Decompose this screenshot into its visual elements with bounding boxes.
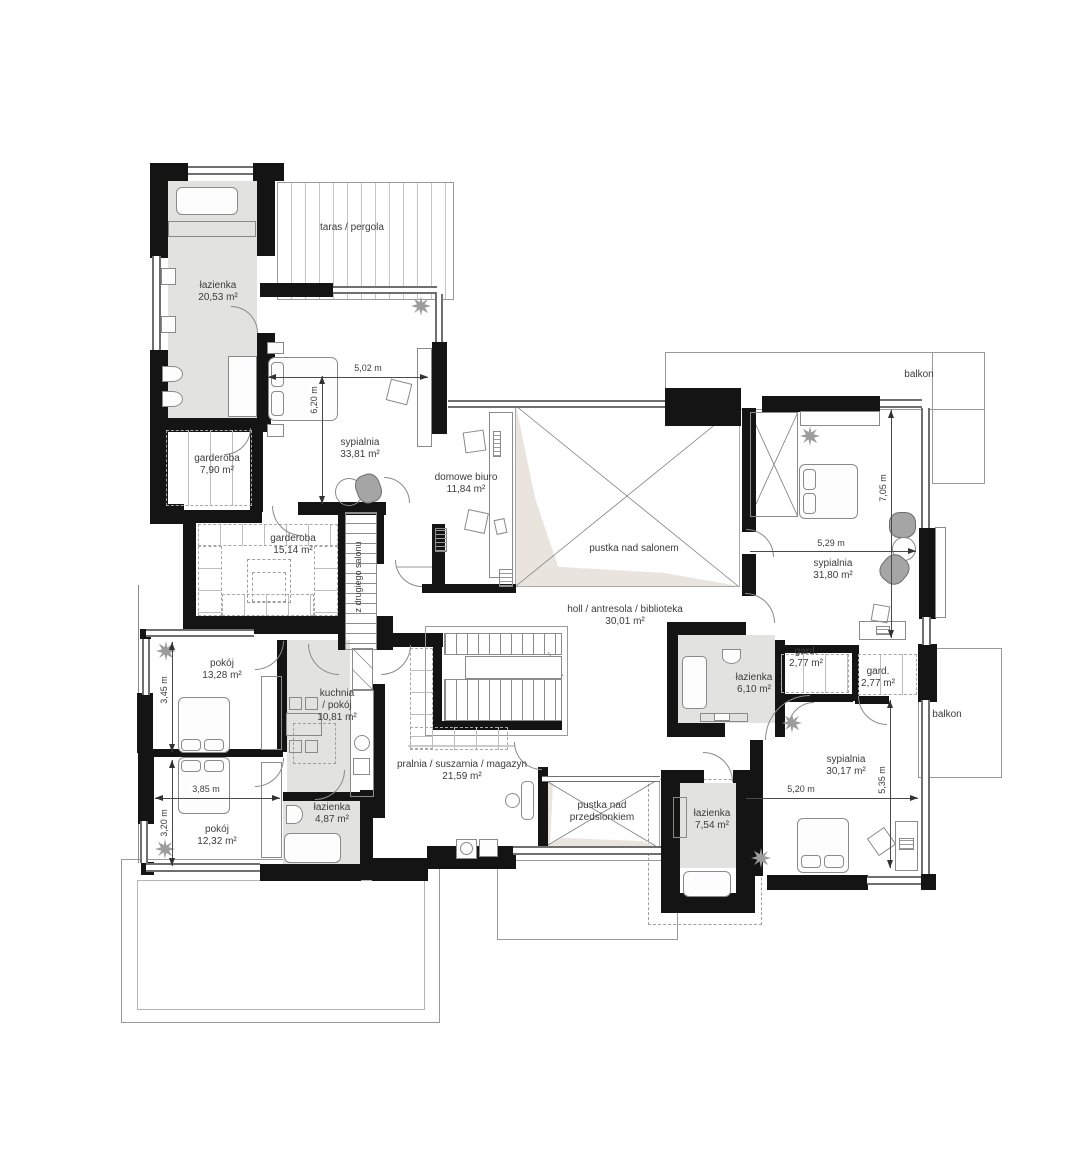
wall: [432, 342, 447, 434]
chair: [386, 379, 413, 406]
kitchen-sink: [354, 735, 370, 751]
stairs-note-label: z drugiego salonu: [353, 539, 363, 614]
room-label-pokoj1: pokój 13,28 m²: [202, 658, 241, 682]
room-name: przedsionkiem: [570, 812, 634, 824]
room-area: 30,17 m²: [826, 766, 865, 778]
chair: [305, 740, 318, 753]
room-label-pustka-salon: pustka nad salonem: [589, 543, 679, 555]
bathtub: [176, 187, 238, 215]
room-name: łazienka: [736, 672, 773, 684]
window: [880, 399, 922, 408]
room-area: 11,84 m²: [435, 484, 498, 496]
arrow-icon: [169, 760, 175, 768]
wall: [138, 751, 154, 824]
wall: [150, 504, 184, 524]
room-label-kuchnia: kuchnia / pokój 10,81 m²: [317, 688, 356, 724]
sideboard: [800, 411, 880, 426]
window: [140, 821, 148, 863]
room-area: 13,28 m²: [202, 670, 241, 682]
fridge-crossed: [352, 648, 373, 690]
room-name: balkon: [904, 369, 933, 381]
dimension-line: [155, 798, 280, 799]
room-name: łazienka: [314, 802, 351, 814]
wall: [921, 874, 936, 890]
room-label-pralnia: pralnia / suszarnia / magazyn 21,59 m²: [397, 759, 527, 783]
arrow-icon: [169, 858, 175, 866]
bathtub: [683, 871, 731, 897]
chair: [289, 697, 302, 710]
room-label-sypialnia1: sypialnia 33,81 m²: [340, 437, 379, 461]
arrow-icon: [272, 795, 280, 801]
balcony-post: [935, 527, 946, 618]
wall: [377, 504, 384, 564]
nightstand: [267, 342, 284, 354]
room-label-lazienka1: łazienka 20,53 m²: [198, 280, 237, 304]
room-name: garderoba: [194, 453, 240, 465]
room-area: 7,90 m²: [194, 465, 240, 477]
laptop: [899, 838, 914, 850]
arrow-icon: [910, 795, 918, 801]
room-name: gard.: [861, 666, 895, 678]
room-name: kuchnia: [317, 688, 356, 700]
chair: [305, 697, 318, 710]
room-label-lazienka3: łazienka 7,54 m²: [694, 808, 731, 832]
washing-machine-drum: [460, 842, 473, 855]
room-name: pokój: [197, 824, 236, 836]
arrow-icon: [887, 860, 893, 868]
dimension-line: [891, 410, 892, 638]
room-label-sypialnia2: sypialnia 31,80 m²: [813, 558, 852, 582]
wall: [150, 178, 168, 258]
wardrobe: [261, 676, 282, 750]
wardrobe: [261, 762, 282, 858]
ironing-board: [521, 781, 534, 820]
room-label-pokoj2: pokój 12,32 m²: [197, 824, 236, 848]
floor-plan: 5,02 m 6,20 m 7,05 m 5,29 m 3,45 m 3,85 …: [0, 0, 1088, 1167]
main-staircase-landing: [465, 656, 562, 679]
door-arc: [858, 696, 887, 725]
window: [188, 166, 253, 175]
arrow-icon: [155, 795, 163, 801]
wardrobe-zone: [198, 546, 222, 616]
room-name: pokój: [202, 658, 241, 670]
bookshelf: [435, 528, 447, 552]
chair: [464, 509, 489, 534]
toilet: [162, 366, 183, 382]
room-name: taras / pergola: [320, 222, 384, 234]
window: [146, 629, 254, 637]
plant-icon: [800, 426, 820, 446]
room-area: 4,87 m²: [314, 814, 351, 826]
dim-label: 5,35 m: [877, 764, 887, 796]
arrow-icon: [319, 496, 325, 504]
door-arc: [395, 560, 422, 587]
door-arc: [703, 752, 733, 782]
room-label-taras: taras / pergola: [320, 222, 384, 234]
window: [513, 846, 661, 855]
window: [921, 700, 930, 874]
room-label-balkon-gorny: balkon: [904, 369, 933, 381]
dimension-line: [172, 760, 173, 866]
wall: [762, 396, 880, 412]
main-staircase-upper-flight: [444, 633, 562, 655]
wall: [137, 693, 153, 753]
pillow: [181, 739, 201, 751]
wall: [433, 635, 442, 728]
room-name: sypialnia: [813, 558, 852, 570]
pillow: [204, 760, 224, 772]
dimension-line: [746, 798, 918, 799]
wall: [733, 770, 756, 783]
plant-icon: [751, 848, 771, 868]
wall: [680, 770, 704, 783]
chair: [867, 827, 896, 856]
window: [922, 617, 931, 645]
dimension-line: [322, 376, 323, 504]
plant-icon: [411, 296, 431, 316]
dimension-line: [268, 377, 428, 378]
wardrobe-zone: [314, 546, 338, 616]
pillow: [803, 469, 816, 490]
window: [146, 863, 260, 872]
pillow: [801, 855, 821, 868]
room-label-biuro: domowe biuro 11,84 m²: [435, 472, 498, 496]
room-name: garderoba: [270, 533, 316, 545]
door-arc: [745, 593, 775, 623]
chair: [289, 740, 302, 753]
room-area: 20,53 m²: [198, 292, 237, 304]
window: [542, 776, 660, 782]
dim-label: 6,20 m: [309, 384, 319, 416]
arrow-icon: [887, 700, 893, 708]
wall: [665, 388, 741, 426]
room-area: 30,01 m²: [567, 616, 683, 628]
arrow-icon: [888, 630, 894, 638]
bathroom-counter: [168, 221, 256, 237]
room-name: pustka nad: [570, 800, 634, 812]
wall: [767, 875, 868, 890]
wall: [260, 864, 361, 881]
window: [435, 294, 443, 342]
wall: [373, 684, 385, 818]
room-name: balkon: [932, 709, 961, 721]
chair: [463, 430, 487, 454]
dim-label: 5,02 m: [351, 363, 385, 373]
arrow-icon: [268, 374, 276, 380]
wall: [918, 644, 937, 702]
room-area: 31,80 m²: [813, 570, 852, 582]
shower: [228, 356, 257, 417]
room-label-balkon-boczny: balkon: [932, 709, 961, 721]
arrow-icon: [888, 410, 894, 418]
wall: [919, 528, 936, 619]
dimension-line: [750, 551, 916, 552]
dimension-line: [172, 642, 173, 752]
room-label-holl: holl / antresola / biblioteka 30,01 m²: [567, 604, 683, 628]
room-label-pustka-przedsionek: pustka nad przedsionkiem: [570, 800, 634, 824]
room-name: sypialnia: [826, 754, 865, 766]
room-area: 6,10 m²: [736, 684, 773, 696]
arrow-icon: [169, 744, 175, 752]
washbasin: [161, 268, 176, 285]
room-name: sypialnia: [340, 437, 379, 449]
room-label-sypialnia3: sypialnia 30,17 m²: [826, 754, 865, 778]
door-arc: [384, 477, 410, 503]
room-name: gard.: [789, 646, 823, 658]
plant-icon: [782, 713, 802, 733]
nightstand: [267, 424, 284, 437]
dim-label: 7,05 m: [878, 472, 888, 504]
terrace-below-inner-outline: [137, 880, 425, 1010]
room-name: pustka nad salonem: [589, 543, 679, 555]
room-label-gard-a: gard. 2,77 m²: [789, 646, 823, 670]
room-name: łazienka: [198, 280, 237, 292]
wall: [260, 283, 333, 297]
room-label-gard-b: gard. 2,77 m²: [861, 666, 895, 690]
room-name: domowe biuro: [435, 472, 498, 484]
monitor: [493, 431, 501, 457]
door-arc: [381, 645, 411, 675]
bathtub: [682, 656, 707, 709]
wall: [742, 554, 756, 596]
door-arc: [746, 529, 774, 557]
pillow: [271, 391, 284, 416]
balcony-top-right-outline: [932, 352, 985, 484]
main-staircase-lower-flight: [444, 679, 562, 721]
washbasin: [286, 805, 303, 824]
room-area: 21,59 m²: [397, 771, 527, 783]
washbasin: [722, 649, 741, 664]
armchair: [889, 512, 916, 538]
room-label-garderoba2: garderoba 15,14 m²: [270, 533, 316, 557]
arrow-icon: [169, 642, 175, 650]
window: [333, 286, 437, 294]
window: [921, 408, 930, 528]
room-name: holl / antresola / biblioteka: [567, 604, 683, 616]
window: [867, 876, 921, 885]
dimension-line: [890, 700, 891, 868]
wall: [667, 723, 725, 737]
pillow: [803, 493, 816, 514]
wardrobe-zone: [198, 524, 338, 546]
room-area: 12,32 m²: [197, 836, 236, 848]
window: [142, 639, 150, 695]
dim-label: 3,20 m: [159, 807, 169, 839]
pillow: [181, 760, 201, 772]
dim-label: 3,45 m: [159, 674, 169, 706]
bathtub: [284, 833, 341, 863]
room-area: 7,54 m²: [694, 820, 731, 832]
room-area: 2,77 m²: [789, 658, 823, 670]
room-label-garderoba1: garderoba 7,90 m²: [194, 453, 240, 477]
stove: [353, 758, 370, 775]
bidet: [162, 391, 183, 407]
dresser: [417, 348, 432, 447]
room-area: 2,77 m²: [861, 678, 895, 690]
washbasin: [161, 316, 176, 333]
pillow: [824, 855, 844, 868]
room-area: 10,81 m²: [317, 712, 356, 724]
bookshelf: [499, 569, 513, 587]
window: [152, 256, 161, 350]
window: [448, 400, 665, 408]
room-area: 15,14 m²: [270, 545, 316, 557]
wall: [372, 858, 428, 881]
wardrobe-crossed: [750, 412, 798, 517]
wall: [257, 178, 275, 256]
room-name: łazienka: [694, 808, 731, 820]
void-over-livingroom-outline: [515, 405, 740, 587]
wardrobe-island: [252, 572, 286, 602]
room-name: / pokój: [317, 700, 356, 712]
room-label-lazienka4: łazienka 4,87 m²: [314, 802, 351, 826]
wall: [183, 521, 196, 620]
room-name: pralnia / suszarnia / magazyn: [397, 759, 527, 771]
arrow-icon: [420, 374, 428, 380]
vanity: [673, 797, 687, 838]
room-label-lazienka2: łazienka 6,10 m²: [736, 672, 773, 696]
dim-label: 5,20 m: [784, 784, 818, 794]
dim-label: 3,85 m: [189, 784, 223, 794]
laundry-basket: [505, 793, 520, 808]
pillow: [204, 739, 224, 751]
arrow-icon: [319, 376, 325, 384]
wall: [667, 635, 678, 737]
closet-zone: [410, 727, 508, 750]
utility-sink: [479, 839, 498, 857]
room-area: 33,81 m²: [340, 449, 379, 461]
toilet: [714, 713, 730, 721]
dim-label: 5,29 m: [814, 538, 848, 548]
arrow-icon: [908, 548, 916, 554]
wall: [661, 770, 680, 913]
